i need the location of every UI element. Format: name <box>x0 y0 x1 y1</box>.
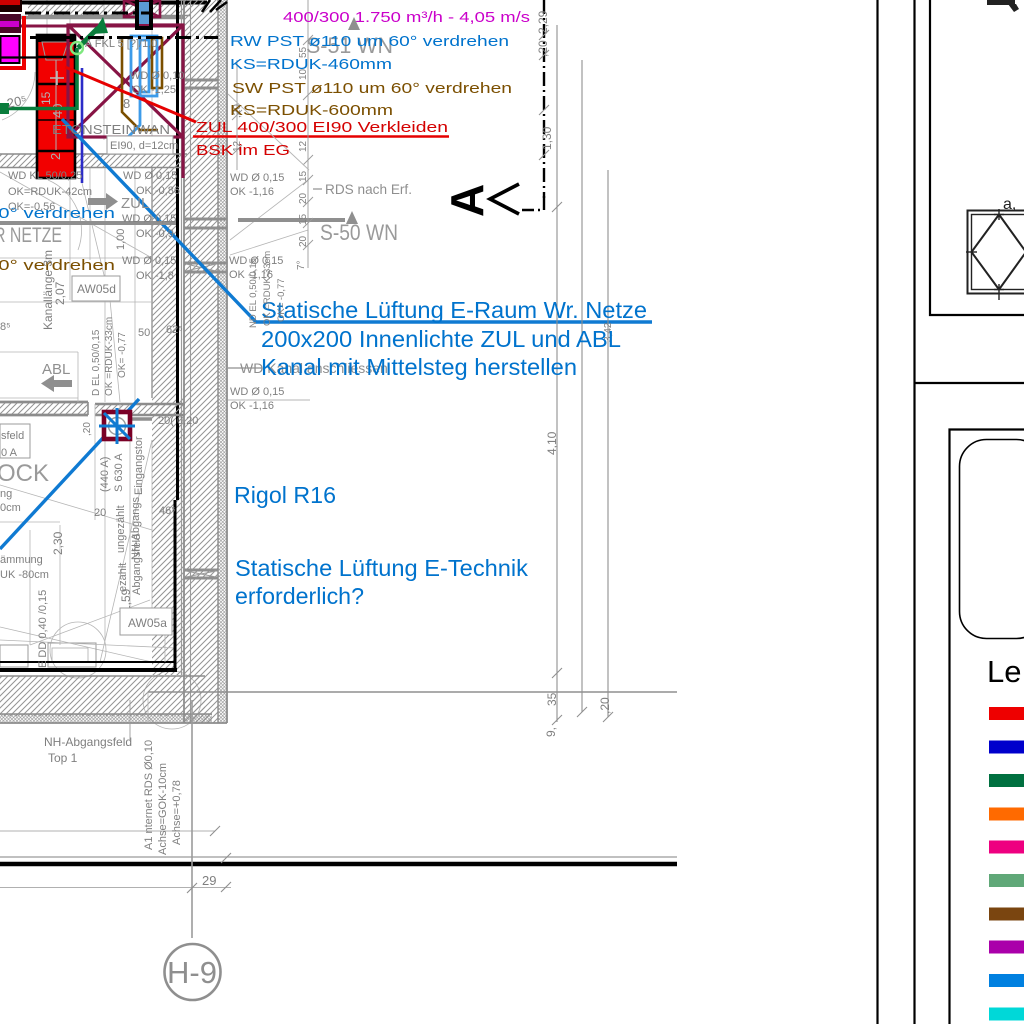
svg-text:OK= -0,77: OK= -0,77 <box>276 278 287 322</box>
svg-text:20: 20 <box>298 235 309 247</box>
svg-text:ZUL: ZUL <box>121 195 149 212</box>
svg-text:WD Ø 0,15: WD Ø 0,15 <box>230 172 284 184</box>
svg-text:9,: 9, <box>544 727 558 737</box>
svg-text:WD Ø 0,15: WD Ø 0,15 <box>230 386 284 398</box>
svg-text:Abgangsfeld: Abgangsfeld <box>131 534 143 595</box>
svg-text:E DD 0,40 /0,15: E DD 0,40 /0,15 <box>37 590 49 668</box>
svg-text:H-9: H-9 <box>167 955 217 990</box>
svg-text:50: 50 <box>138 327 150 339</box>
svg-text:S-50 WN: S-50 WN <box>320 220 398 245</box>
svg-text:7°: 7° <box>296 260 307 270</box>
svg-text:0 A: 0 A <box>1 447 18 459</box>
svg-text:OK -1,16: OK -1,16 <box>230 186 274 198</box>
svg-text:Le: Le <box>987 654 1021 689</box>
svg-text:15: 15 <box>298 170 309 182</box>
svg-text:20: 20 <box>298 192 309 204</box>
svg-text:A: A <box>441 184 493 217</box>
svg-text:ungezählt: ungezählt <box>115 505 127 553</box>
svg-text:KS=RDUK-460mm: KS=RDUK-460mm <box>230 56 392 73</box>
svg-text:12: 12 <box>298 140 309 152</box>
svg-text:(440 A): (440 A) <box>99 457 111 492</box>
svg-text:15: 15 <box>298 213 309 225</box>
svg-text:R NETZE: R NETZE <box>0 224 62 247</box>
svg-text:OK =RDUK-33cm: OK =RDUK-33cm <box>262 251 273 326</box>
svg-text:1,00: 1,00 <box>115 229 127 250</box>
svg-text:OCK: OCK <box>0 460 49 487</box>
svg-text:BSK im EG: BSK im EG <box>196 142 290 159</box>
svg-text:,20: ,20 <box>536 40 550 57</box>
svg-text:WD Ø 0,10: WD Ø 0,10 <box>130 70 184 82</box>
svg-text:Top 1: Top 1 <box>48 751 78 765</box>
svg-text:OK -1,16: OK -1,16 <box>230 400 274 412</box>
svg-text:EI90, d=12cm: EI90, d=12cm <box>110 140 178 152</box>
svg-text:OK -0,86: OK -0,86 <box>136 185 180 197</box>
svg-text:ETONSTEINWAN: ETONSTEINWAN <box>52 122 170 137</box>
svg-text:Statische Lüftung E-Raum Wr. N: Statische Lüftung E-Raum Wr. Netze <box>261 297 647 323</box>
svg-text:8⁵: 8⁵ <box>0 321 11 333</box>
svg-text:1,30: 1,30 <box>540 126 554 150</box>
svg-text:20( 0,20: 20( 0,20 <box>158 415 198 427</box>
svg-text:ämmung: ämmung <box>0 554 43 566</box>
svg-text:OK -1,25: OK -1,25 <box>132 84 176 96</box>
svg-text:ezahlt: ezahlt <box>117 563 129 592</box>
svg-text:40: 40 <box>50 104 65 118</box>
svg-text:erforderlich?: erforderlich? <box>235 583 364 609</box>
svg-text:AW05d: AW05d <box>77 282 116 296</box>
svg-text:SW PST ø110 um 60° verdrehen: SW PST ø110 um 60° verdrehen <box>232 80 512 97</box>
svg-text:OK -0,9: OK -0,9 <box>136 228 174 240</box>
svg-text:62⁵: 62⁵ <box>166 324 183 336</box>
svg-text:,20: ,20 <box>82 422 93 436</box>
svg-text:A1 nternet RDS Ø0,10: A1 nternet RDS Ø0,10 <box>143 740 155 850</box>
svg-text:Eingangstor: Eingangstor <box>133 436 145 495</box>
svg-text:ZUL 400/300 EI90 Verkleiden: ZUL 400/300 EI90 Verkleiden <box>196 119 448 136</box>
svg-text:20: 20 <box>94 507 106 519</box>
svg-text:OK=-0,56: OK=-0,56 <box>8 201 55 213</box>
svg-text:Statische Lüftung E-Technik: Statische Lüftung E-Technik <box>235 555 529 581</box>
svg-text:2,30: 2,30 <box>51 531 65 555</box>
svg-text:ng: ng <box>0 488 12 500</box>
svg-text:A FKL 5 [?]/1,0: A FKL 5 [?]/1,0 <box>85 38 157 50</box>
svg-text:8: 8 <box>123 96 130 111</box>
svg-text:0cm: 0cm <box>0 502 21 514</box>
svg-text:60° verdrehen: 60° verdrehen <box>0 257 115 274</box>
svg-text:WD KL 50/0,25: WD KL 50/0,25 <box>8 170 82 182</box>
svg-text:,20: ,20 <box>598 697 612 714</box>
svg-text:2: 2 <box>48 153 63 160</box>
svg-text:ND EL 0,50/0,15: ND EL 0,50/0,15 <box>248 258 259 328</box>
svg-text:sfeld: sfeld <box>1 430 24 442</box>
svg-text:WD Ø 0,15: WD Ø 0,15 <box>123 170 177 182</box>
svg-text:D EL 0,50/0,15: D EL 0,50/0,15 <box>91 329 102 396</box>
svg-text:OK= -0,77: OK= -0,77 <box>117 332 128 378</box>
svg-text:NH-Abgangsfeld: NH-Abgangsfeld <box>44 735 132 749</box>
svg-text:RW PST ø110 um 60° verdrehen: RW PST ø110 um 60° verdrehen <box>230 33 509 50</box>
svg-text:46⁵: 46⁵ <box>159 505 176 517</box>
svg-text:WD Ø 0,15: WD Ø 0,15 <box>122 213 176 225</box>
svg-text:200x200 Innenlichte ZUL und AB: 200x200 Innenlichte ZUL und ABL <box>261 326 621 352</box>
svg-text:OK=RDUK-42cm: OK=RDUK-42cm <box>8 186 92 198</box>
svg-text:Achse=+0,78: Achse=+0,78 <box>171 780 183 845</box>
svg-text:OK -1,8: OK -1,8 <box>136 270 174 282</box>
svg-text:ABL: ABL <box>42 361 70 378</box>
svg-text:Rigol R16: Rigol R16 <box>234 482 336 508</box>
svg-text:OK =RDUK-33cm: OK =RDUK-33cm <box>104 317 115 396</box>
svg-text:400/300 1.750 m³/h - 4,05 m/s: 400/300 1.750 m³/h - 4,05 m/s <box>283 9 530 26</box>
svg-text:Kanal mit Mittelsteg herstelle: Kanal mit Mittelsteg herstellen <box>261 354 577 380</box>
svg-text:RDS nach Erf.: RDS nach Erf. <box>325 181 412 197</box>
svg-text:UK -80cm: UK -80cm <box>0 569 49 581</box>
svg-text:29: 29 <box>202 873 216 888</box>
svg-text:WD Ø 0,15: WD Ø 0,15 <box>122 255 176 267</box>
svg-text:S 630 A: S 630 A <box>113 453 125 492</box>
svg-text:AW05a: AW05a <box>128 616 167 630</box>
svg-text:15: 15 <box>39 91 53 105</box>
svg-text:Achse=GOK-10cm: Achse=GOK-10cm <box>157 763 169 855</box>
svg-text:2,07: 2,07 <box>53 281 67 305</box>
svg-text:a,: a, <box>1003 196 1016 213</box>
svg-text:35: 35 <box>545 692 559 706</box>
svg-text:KS=RDUK-600mm: KS=RDUK-600mm <box>230 102 393 119</box>
svg-text:4,10: 4,10 <box>545 431 559 455</box>
